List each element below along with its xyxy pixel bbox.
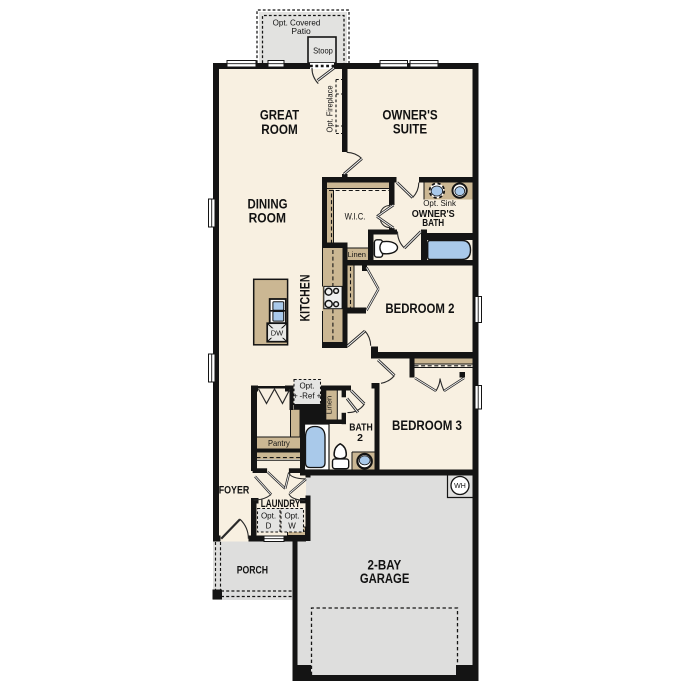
svg-text:GARAGE: GARAGE (360, 571, 410, 586)
svg-text:BEDROOM 3: BEDROOM 3 (392, 418, 462, 433)
svg-text:Pantry: Pantry (268, 438, 290, 448)
svg-text:Linen: Linen (348, 250, 366, 259)
svg-text:BATH: BATH (422, 217, 444, 229)
svg-text:DINING: DINING (247, 197, 287, 212)
svg-text:SUITE: SUITE (393, 122, 427, 137)
svg-text:Linen: Linen (325, 396, 334, 414)
svg-text:PORCH: PORCH (237, 565, 268, 577)
svg-text:W: W (288, 522, 296, 531)
svg-text:ROOM: ROOM (249, 211, 286, 226)
svg-text:2: 2 (357, 432, 363, 444)
svg-text:Opt. Fireplace: Opt. Fireplace (325, 85, 334, 133)
svg-text:Patio: Patio (291, 26, 311, 36)
svg-text:FOYER: FOYER (219, 484, 250, 496)
svg-text:GREAT: GREAT (260, 108, 300, 123)
svg-text:+: + (293, 392, 298, 401)
svg-text:WH: WH (454, 483, 466, 490)
svg-text:KITCHEN: KITCHEN (297, 275, 312, 322)
svg-text:W.I.C.: W.I.C. (345, 211, 366, 221)
svg-text:-Ref: -Ref (299, 392, 315, 401)
svg-text:ROOM: ROOM (261, 122, 297, 137)
svg-text:+: + (317, 392, 322, 401)
svg-text:D: D (266, 522, 272, 531)
svg-text:BEDROOM 2: BEDROOM 2 (385, 301, 454, 316)
svg-text:Opt.: Opt. (299, 381, 314, 390)
svg-text:LAUNDRY: LAUNDRY (261, 498, 301, 510)
svg-text:Opt. Sink: Opt. Sink (423, 199, 457, 208)
svg-text:Opt.: Opt. (261, 512, 276, 521)
svg-text:OWNER'S: OWNER'S (382, 108, 437, 123)
svg-text:Opt.: Opt. (284, 512, 299, 521)
svg-text:Stoop: Stoop (313, 45, 333, 55)
svg-text:DW: DW (271, 329, 284, 338)
